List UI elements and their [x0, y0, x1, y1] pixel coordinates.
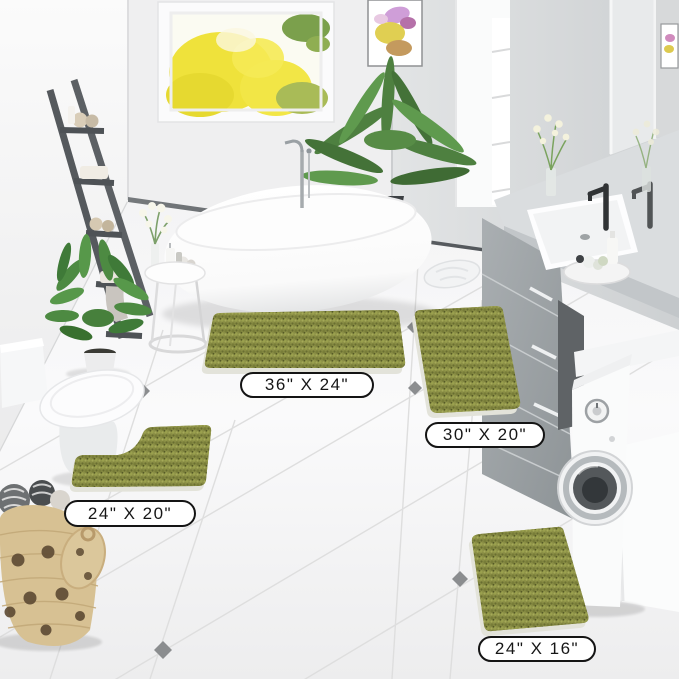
size-label-30x20: 30" X 20"	[425, 422, 545, 448]
mirror-art-reflection	[661, 24, 678, 68]
size-label-24x20: 24" X 20"	[64, 500, 196, 527]
rug-30x20	[412, 306, 520, 418]
scene-illustration	[0, 0, 679, 679]
washer-button	[609, 436, 615, 442]
vanity-mirror	[610, 0, 679, 155]
rug-36x24	[202, 310, 405, 374]
wall-art-frame	[368, 0, 422, 66]
window	[158, 2, 334, 122]
size-label-24x16: 24" X 16"	[478, 636, 596, 662]
washer-door	[558, 451, 632, 525]
washer-dial	[586, 400, 608, 422]
right-mirror-strip	[656, 0, 679, 138]
shelf-column	[456, 0, 510, 207]
size-label-36x24: 36" X 24"	[240, 372, 374, 398]
bathroom-scene: 36" X 24" 30" X 20" 24" X 20" 24" X 16"	[0, 0, 679, 679]
